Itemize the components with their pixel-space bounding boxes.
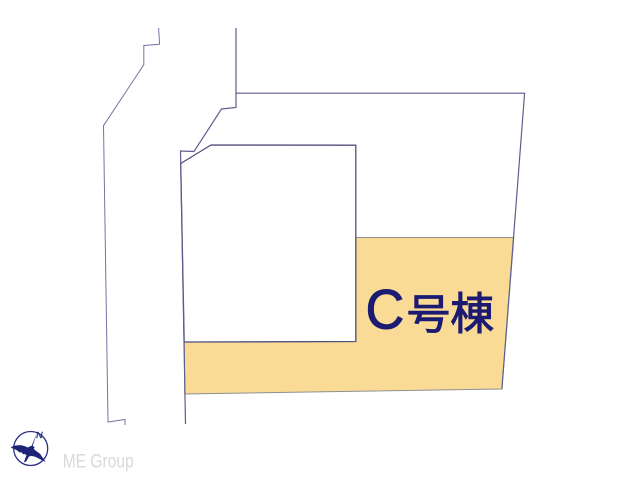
svg-text:ME Group: ME Group <box>63 451 134 472</box>
